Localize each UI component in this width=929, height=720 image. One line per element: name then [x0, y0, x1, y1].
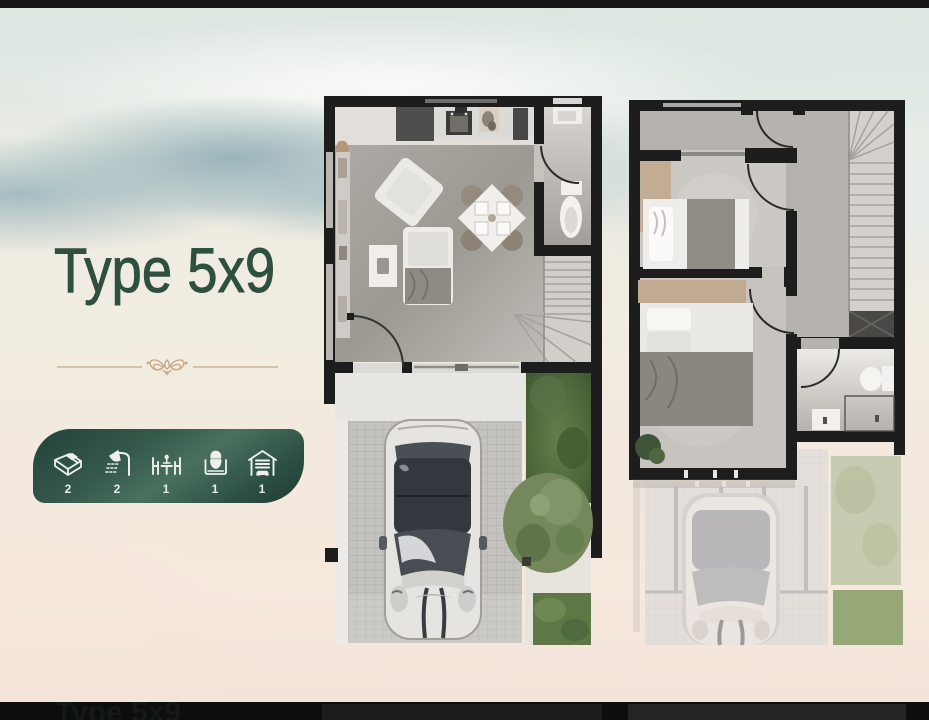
svg-text:1: 1: [163, 482, 170, 496]
svg-text:2: 2: [114, 482, 121, 496]
svg-text:1: 1: [259, 482, 266, 496]
svg-text:1: 1: [212, 482, 219, 496]
svg-text:2: 2: [65, 482, 72, 496]
